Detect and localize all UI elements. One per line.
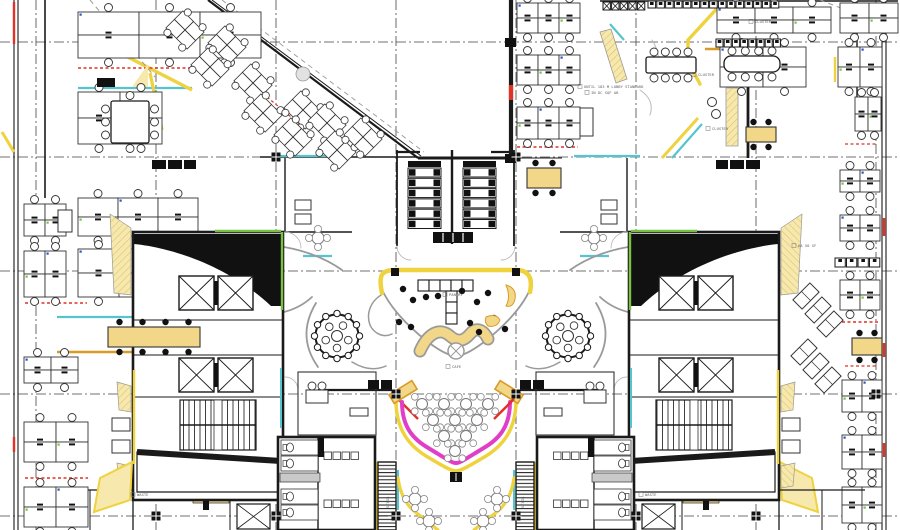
sofa xyxy=(544,408,562,416)
monitor-icon xyxy=(847,296,853,298)
monitor-icon xyxy=(95,218,101,220)
chair-icon xyxy=(94,190,102,198)
chair-icon xyxy=(553,336,561,344)
plan-curve xyxy=(501,246,515,260)
sink-icon xyxy=(324,452,332,460)
monitor-icon xyxy=(69,439,75,441)
chair-icon xyxy=(61,384,69,392)
cafe-table xyxy=(439,431,450,442)
monitor-icon xyxy=(859,111,865,113)
chair-icon xyxy=(318,382,326,390)
chair-icon xyxy=(596,382,604,390)
monitor-icon xyxy=(37,439,43,441)
chair-icon xyxy=(488,517,495,524)
task-marker xyxy=(842,183,844,185)
sofa xyxy=(782,418,800,431)
monitor-icon xyxy=(546,15,552,17)
chair-icon xyxy=(848,427,856,435)
chair-icon xyxy=(137,84,145,92)
task-marker xyxy=(844,437,846,439)
desk xyxy=(45,274,66,297)
chair-icon xyxy=(545,86,553,94)
annotation-text: WASTE xyxy=(645,492,657,497)
chair-icon xyxy=(545,0,553,3)
bank-chair xyxy=(409,221,416,228)
sink-icon xyxy=(333,500,341,508)
desk xyxy=(24,251,45,274)
annotation-tag-box xyxy=(585,90,589,94)
grid-marker xyxy=(512,390,521,399)
monitor-icon xyxy=(872,115,878,117)
monitor-icon xyxy=(32,275,38,277)
locker-row xyxy=(716,39,780,47)
equipment-box xyxy=(381,380,392,389)
task-marker xyxy=(871,20,873,22)
monitor-icon xyxy=(846,68,852,70)
chair-icon xyxy=(134,190,142,198)
monitor-icon xyxy=(771,17,777,19)
task-marker xyxy=(870,116,872,118)
cafe-chair xyxy=(470,393,477,400)
round-table xyxy=(312,232,324,244)
chair-icon xyxy=(868,372,876,380)
monitor-icon xyxy=(525,124,531,126)
sink-icon xyxy=(342,500,350,508)
monitor-icon xyxy=(35,371,41,373)
bank-chair xyxy=(464,200,471,207)
column-post xyxy=(391,268,399,276)
monitor-icon xyxy=(846,64,852,66)
cafe-chair xyxy=(433,425,440,432)
equipment-box xyxy=(168,160,182,169)
stool-icon xyxy=(549,160,555,166)
task-marker xyxy=(561,20,563,22)
monitor-icon xyxy=(96,270,102,272)
monitor-icon xyxy=(69,508,75,510)
desk-cluster xyxy=(517,47,580,94)
monitor-icon xyxy=(867,225,873,227)
stool-icon xyxy=(408,324,414,330)
equipment-box xyxy=(203,501,209,510)
chair-icon xyxy=(416,517,423,524)
sink-icon xyxy=(572,452,580,460)
grid-marker xyxy=(512,512,521,521)
elevator-door xyxy=(214,363,218,387)
monitor-icon xyxy=(37,443,43,445)
monitor-icon xyxy=(567,67,573,69)
elevator-door xyxy=(694,363,698,387)
grid-marker xyxy=(752,512,761,521)
monitor-icon xyxy=(546,120,552,122)
chair-icon xyxy=(566,140,574,148)
stool-icon xyxy=(750,119,756,125)
desk-cluster xyxy=(840,272,880,319)
corridor-band xyxy=(592,473,632,482)
monitor-icon xyxy=(525,67,531,69)
pantry-atrium xyxy=(368,268,531,359)
plan-curve xyxy=(611,232,627,248)
stool-icon xyxy=(502,326,508,332)
chair-icon xyxy=(846,311,854,319)
monitor-icon xyxy=(859,115,865,117)
chair-icon xyxy=(105,4,113,12)
chair-icon xyxy=(166,4,174,12)
monitor-icon xyxy=(32,271,38,273)
chair-icon xyxy=(590,243,597,250)
plan-curve xyxy=(285,377,298,390)
task-marker xyxy=(540,109,542,111)
chair-icon xyxy=(31,243,39,251)
toilet-tank xyxy=(283,461,287,467)
chair-icon xyxy=(325,323,333,331)
chair-icon xyxy=(867,39,875,47)
monitor-icon xyxy=(847,182,853,184)
bank-header xyxy=(463,161,496,167)
sofa xyxy=(295,200,311,210)
bank-header xyxy=(408,161,441,167)
monitor-icon xyxy=(567,124,573,126)
bank-chair xyxy=(434,180,441,187)
bank-chair xyxy=(464,180,471,187)
toilet-tank xyxy=(626,494,630,500)
round-table-group xyxy=(305,225,330,250)
desk-cluster xyxy=(517,99,580,148)
chair-icon xyxy=(545,140,553,148)
stool-icon xyxy=(474,299,480,305)
chair-icon xyxy=(868,413,876,421)
pod-table xyxy=(332,331,343,342)
chair-icon xyxy=(846,242,854,250)
monitor-icon xyxy=(881,19,887,21)
pod-scallop xyxy=(576,352,582,358)
locker-tick xyxy=(703,2,707,5)
round-table-group xyxy=(484,486,509,511)
chair-icon xyxy=(52,243,60,251)
corridor-band xyxy=(280,473,320,482)
sink-icon xyxy=(324,500,332,508)
bank-chair xyxy=(464,210,471,217)
chair-icon xyxy=(808,0,816,7)
toilet-icon xyxy=(287,492,294,501)
elevator-door xyxy=(694,281,698,305)
desk-cluster xyxy=(840,0,898,42)
chair-icon xyxy=(570,322,578,330)
monitor-icon xyxy=(95,214,101,216)
chair-icon xyxy=(126,92,134,100)
monitor-icon xyxy=(782,68,788,70)
chair-icon xyxy=(545,47,553,55)
hatch-overlay xyxy=(726,88,738,146)
stool-icon xyxy=(400,286,406,292)
locker-tick xyxy=(773,2,777,5)
yellow-table-group xyxy=(852,330,882,363)
plan-curve xyxy=(284,247,342,270)
wall-chunk xyxy=(588,437,594,457)
monitor-icon xyxy=(546,19,552,21)
locker-tick xyxy=(718,40,722,43)
wall-chunk xyxy=(318,437,324,457)
locker-tick xyxy=(838,259,842,262)
cafe-chair xyxy=(444,440,451,447)
chair-icon xyxy=(755,47,763,55)
plan-curve xyxy=(284,297,312,312)
chair-icon xyxy=(586,382,594,390)
yellow-table-group xyxy=(527,160,561,196)
pod-scallop xyxy=(334,355,340,361)
locker-tick xyxy=(861,259,865,262)
monitor-icon xyxy=(567,71,573,73)
hatch-overlay xyxy=(781,382,795,412)
conference-table xyxy=(646,57,696,73)
monitor-icon xyxy=(869,453,875,455)
locker-tick xyxy=(775,40,779,43)
chair-icon xyxy=(95,241,103,249)
yellow-table-group xyxy=(746,119,776,150)
chair-icon xyxy=(174,190,182,198)
stool-icon xyxy=(185,319,191,325)
chair-icon xyxy=(434,517,441,524)
stool-icon xyxy=(485,290,491,296)
monitor-icon xyxy=(733,21,739,23)
task-marker xyxy=(842,217,844,219)
meeting-table xyxy=(746,127,776,142)
desk-cluster xyxy=(840,207,880,250)
bank-chair xyxy=(434,221,441,228)
chair-icon xyxy=(728,73,736,81)
cafe-chair xyxy=(459,409,466,416)
chair-icon xyxy=(684,48,692,56)
chair-icon xyxy=(305,234,312,241)
locker-tick xyxy=(873,259,877,262)
chair-icon xyxy=(673,48,681,56)
task-marker xyxy=(202,37,204,39)
storage-cabinet xyxy=(580,108,593,136)
monitor-icon xyxy=(135,218,141,220)
cafe-table xyxy=(428,415,439,426)
chair-icon xyxy=(866,242,874,250)
pod-scallop xyxy=(584,344,590,350)
chair-icon xyxy=(151,118,159,126)
task-marker xyxy=(120,200,122,202)
monitor-icon xyxy=(567,19,573,21)
monitor-icon xyxy=(733,17,739,19)
column-post xyxy=(512,268,520,276)
chair-icon xyxy=(68,479,76,487)
locker-tick xyxy=(726,40,730,43)
cafe-chair xyxy=(437,409,444,416)
task-marker xyxy=(58,489,60,491)
toilet-tank xyxy=(283,494,287,500)
task-marker xyxy=(540,72,542,74)
monitor-icon xyxy=(546,124,552,126)
grid-marker xyxy=(632,512,641,521)
task-marker xyxy=(722,49,724,51)
lounge-chair xyxy=(712,110,721,119)
chair-icon xyxy=(858,132,866,140)
task-marker xyxy=(862,49,864,51)
chair-icon xyxy=(650,48,658,56)
chair-icon xyxy=(227,4,235,12)
cafe-chair xyxy=(448,425,455,432)
chair-icon xyxy=(402,495,409,502)
round-table xyxy=(491,493,503,505)
monitor-icon xyxy=(849,506,855,508)
chair-icon xyxy=(781,39,789,47)
stool-icon xyxy=(162,349,168,355)
cafe-chair xyxy=(411,408,418,415)
pod-scallop xyxy=(323,352,329,358)
cafe-table xyxy=(472,415,483,426)
monitor-icon xyxy=(69,443,75,445)
chair-icon xyxy=(845,88,853,96)
chair-icon xyxy=(323,234,330,241)
monitor-icon xyxy=(53,271,59,273)
chair-icon xyxy=(868,470,876,478)
sink-icon xyxy=(581,500,589,508)
chair-icon xyxy=(755,73,763,81)
stool-icon xyxy=(871,330,877,336)
equipment-box xyxy=(533,380,544,389)
stool-icon xyxy=(532,190,538,196)
wall-line xyxy=(662,118,698,158)
pod-scallop xyxy=(554,352,560,358)
chair-icon xyxy=(866,162,874,170)
chair-icon xyxy=(339,322,347,330)
annotation-text: CLUSTER xyxy=(698,72,715,77)
locker-tick xyxy=(720,2,724,5)
locker-tick xyxy=(742,40,746,43)
sink-icon xyxy=(563,452,571,460)
chair-icon xyxy=(768,47,776,55)
chair-icon xyxy=(575,336,583,344)
round-table xyxy=(423,515,435,527)
monitor-icon xyxy=(37,508,43,510)
sofa xyxy=(782,440,800,453)
cafe-table xyxy=(461,431,472,442)
plan-curve xyxy=(526,362,560,369)
communal-table xyxy=(446,302,457,313)
sink-icon xyxy=(351,500,359,508)
cafe-chair xyxy=(433,440,440,447)
pod-scallop xyxy=(311,333,317,339)
bank-chair xyxy=(489,190,496,197)
desk xyxy=(78,12,139,35)
chair-icon xyxy=(808,34,816,42)
round-table-group xyxy=(470,508,495,530)
locker-tick xyxy=(850,259,854,262)
cafe-chair xyxy=(444,455,451,462)
chair-icon xyxy=(36,463,44,471)
plan-curve xyxy=(640,90,651,115)
plan-curve xyxy=(570,247,628,270)
cafe-chair xyxy=(470,425,477,432)
sofa xyxy=(350,408,368,416)
cafe-chair xyxy=(426,393,433,400)
chair-icon xyxy=(524,0,532,3)
chair-icon xyxy=(866,207,874,215)
chair-icon xyxy=(661,48,669,56)
task-marker xyxy=(864,382,866,384)
sink-icon xyxy=(554,452,562,460)
chair-icon xyxy=(871,132,879,140)
stool-icon xyxy=(467,320,473,326)
monitor-icon xyxy=(867,182,873,184)
monitor-icon xyxy=(849,502,855,504)
monitor-icon xyxy=(106,32,112,34)
pod-scallop xyxy=(314,322,320,328)
chair-icon xyxy=(566,34,574,42)
stool-icon xyxy=(765,144,771,150)
stool-icon xyxy=(116,319,122,325)
cafe-chair xyxy=(470,440,477,447)
monitor-icon xyxy=(96,119,102,121)
monitor-icon xyxy=(771,21,777,23)
task-marker xyxy=(795,22,797,24)
stool-icon xyxy=(750,144,756,150)
task-marker xyxy=(26,359,28,361)
bank-chair xyxy=(409,190,416,197)
task-marker xyxy=(47,222,49,224)
monitor-icon xyxy=(175,218,181,220)
monitor-icon xyxy=(872,111,878,113)
plan-curve xyxy=(352,362,386,369)
pod-scallop xyxy=(345,352,351,358)
chair-icon xyxy=(741,73,749,81)
chair-icon xyxy=(868,524,876,530)
chair-icon xyxy=(36,414,44,422)
monitor-icon xyxy=(847,225,853,227)
locker-tick xyxy=(712,2,716,5)
cafe-table xyxy=(450,415,461,426)
monitor-icon xyxy=(525,19,531,21)
bank-chair xyxy=(489,180,496,187)
chair-icon xyxy=(425,526,432,530)
monitor-icon xyxy=(852,15,858,17)
locker-tick xyxy=(738,2,742,5)
chair-icon xyxy=(484,495,491,502)
chair-icon xyxy=(105,59,113,67)
bank-chair xyxy=(434,169,441,176)
toilet-icon xyxy=(287,459,294,468)
chair-icon xyxy=(137,145,145,153)
stool-icon xyxy=(765,119,771,125)
cafe-chair xyxy=(492,393,499,400)
sofa xyxy=(112,418,130,431)
pod-scallop xyxy=(554,313,560,319)
cafe-chair xyxy=(466,409,473,416)
bank-chair xyxy=(434,210,441,217)
locker-row xyxy=(648,1,779,8)
bank-chair xyxy=(489,221,496,228)
monitor-icon xyxy=(32,221,38,223)
locker-row xyxy=(835,258,880,267)
chair-icon xyxy=(650,74,658,82)
plan-curve xyxy=(594,303,606,367)
chair-icon xyxy=(333,344,341,352)
monitor-icon xyxy=(868,68,874,70)
monitor-icon xyxy=(849,453,855,455)
chair-icon xyxy=(61,349,69,357)
monitor-icon xyxy=(849,449,855,451)
bank-chair xyxy=(409,169,416,176)
floor-plan-canvas: UNTIL 183 M LOBBY STANDARDIN DC SQF ABCL… xyxy=(0,0,900,530)
task-marker xyxy=(26,276,28,278)
task-marker xyxy=(80,14,82,16)
desk-cluster xyxy=(24,479,88,530)
task-marker xyxy=(840,69,842,71)
task-marker xyxy=(80,251,82,253)
pod-scallop xyxy=(545,322,551,328)
